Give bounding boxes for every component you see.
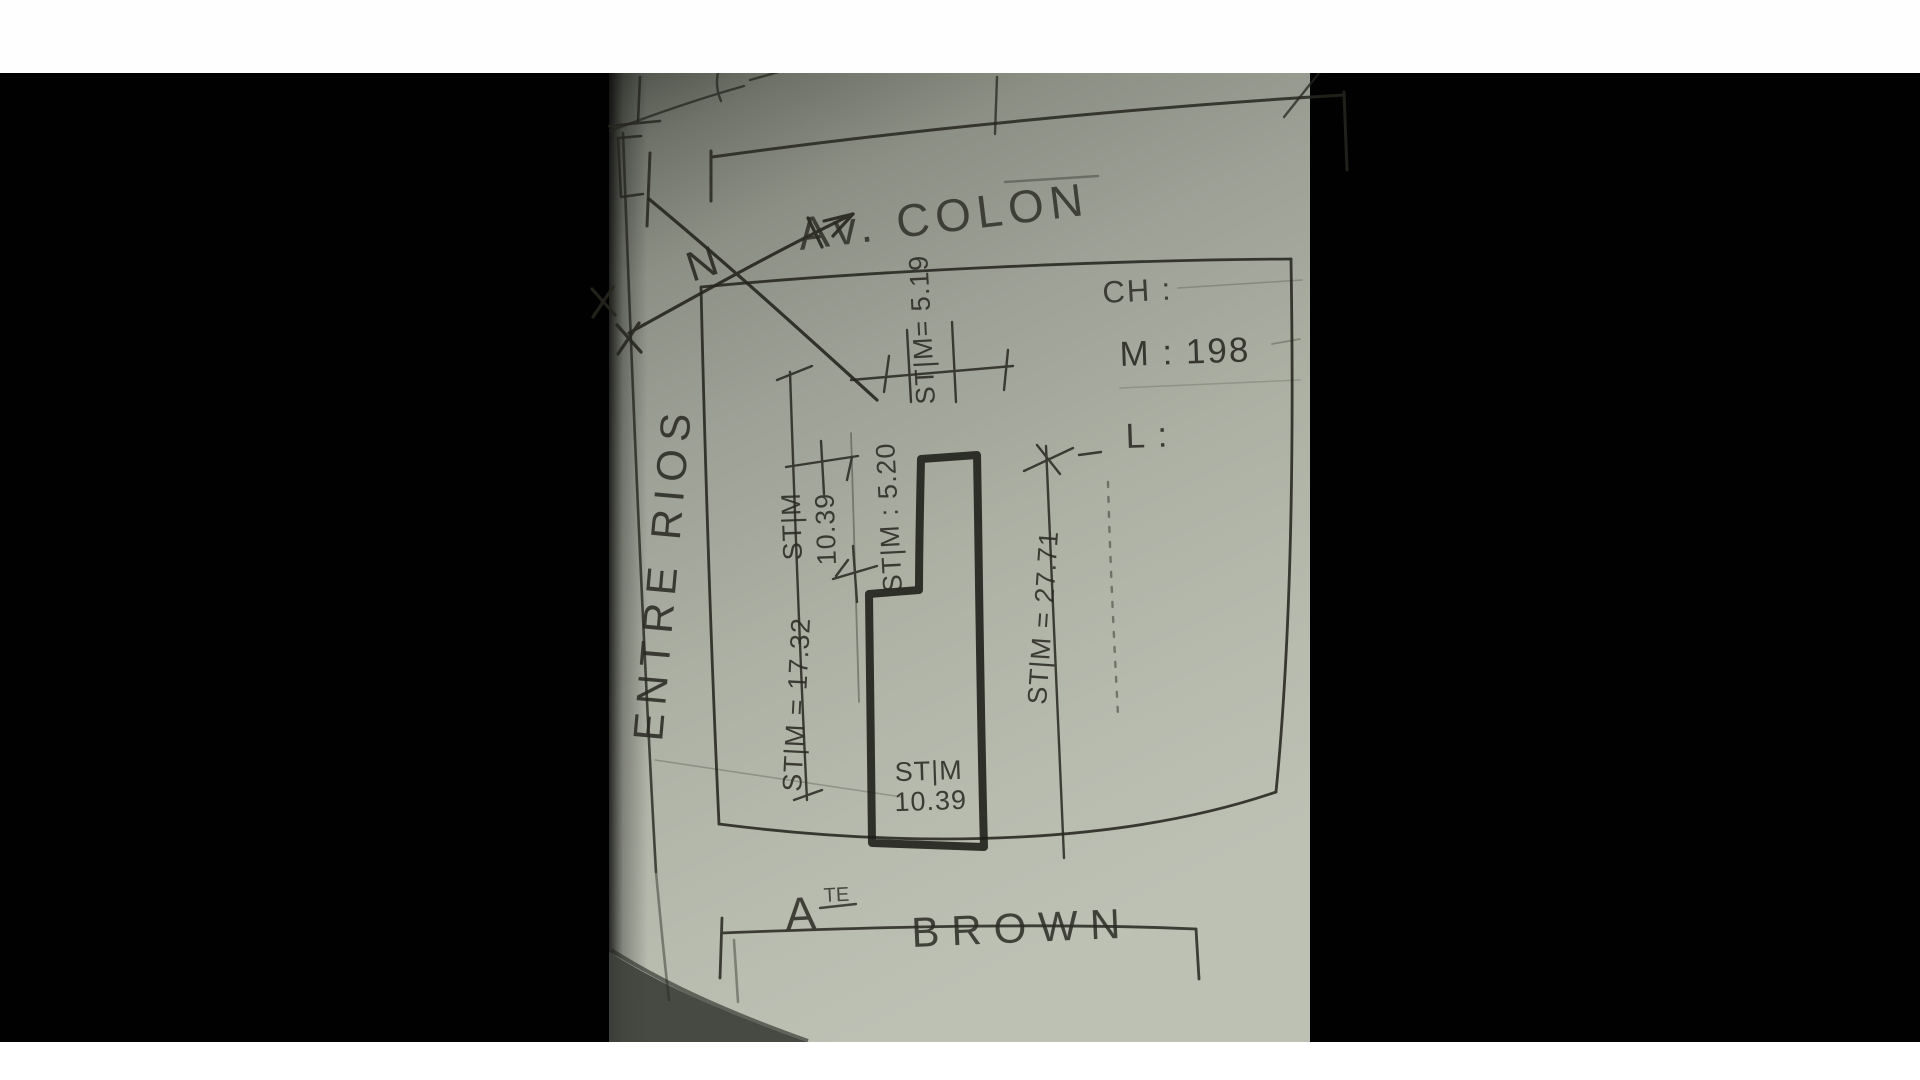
street-name-bottom-prefix: A — [784, 886, 818, 940]
survey-plan-photo: Av. COLON ENTRE RIOS A TE BROWN N CH : M… — [0, 0, 1920, 1080]
street-name-bottom: BROWN — [910, 899, 1133, 956]
page-white-band-bottom — [0, 1042, 1920, 1080]
dim-upper-width-label-line2: 10.39 — [809, 492, 842, 566]
street-name-bottom-prefix-sup: TE — [823, 884, 850, 907]
info-m-label: M : 198 — [1119, 330, 1251, 374]
dim-upper-width-label-line1: ST|M — [776, 492, 808, 561]
letterboxed-photo-page: { "plan": { "streets": { "top": "Av. COL… — [0, 0, 1920, 1080]
dim-bottom-width-label-line1: ST|M — [894, 755, 963, 787]
page-white-band-top — [0, 0, 1920, 73]
info-ch-label: CH : — [1102, 271, 1174, 310]
dim-bottom-width-label-line2: 10.39 — [894, 785, 968, 818]
info-l-label: L : — [1125, 415, 1170, 455]
